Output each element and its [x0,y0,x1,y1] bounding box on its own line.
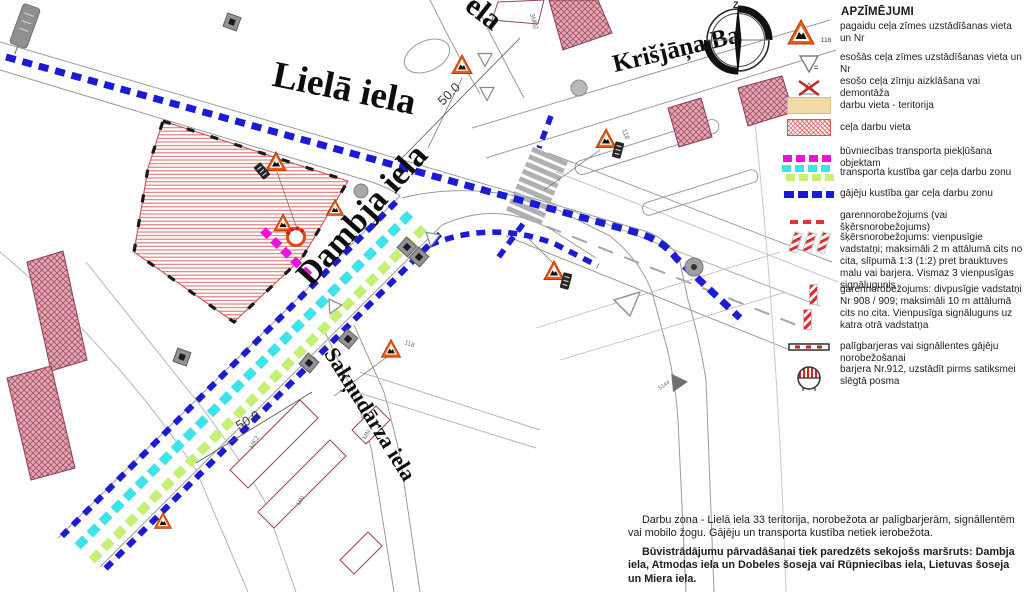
sign-number-118-b: 118 [403,339,415,349]
legend-item-temp-sign: 118 pagaidu ceļa zīmes uzstādīšanas viet… [778,18,1024,48]
legend-item-road-works: ceļa darbu vieta [778,119,1024,136]
legend-item-barrier-912: barjera Nr.912, uzstādīt pirms satiksmei… [778,364,1024,392]
legend-title: APZĪMĒJUMI [841,6,914,18]
legend-item-aux-barriers: palīgbarjeras vai signāllentes gājēju no… [778,341,1024,365]
construction-access-swatch [783,155,835,162]
legend-item-traffic-route: transporta kustība gar ceļa darbu zonu [778,165,1024,181]
note-route: Būvistrādājumu pārvadāšanai tiek paredzē… [628,546,1022,586]
sign-removal-icon [796,78,822,98]
note-work-zone: Darbu zona - Lielā iela 33 teritorija, n… [628,514,1022,541]
barrier-912-marker [288,228,305,245]
legend-label: transporta kustība gar ceļa darbu zonu [840,167,1024,179]
legend-label: garennorobežojums (vai šķērsnorobežojums… [840,210,1024,234]
legend-label: pagaidu ceļa zīmes uzstādīšanas vieta un… [840,21,1024,45]
legend-item-existing-sign: esošās ceļa zīmes uzstādīšanas vieta un … [778,52,1024,76]
legend-label: garennorobežojums: divpusīgie vadstatņi … [840,284,1024,332]
existing-sign-icon [797,53,821,75]
aux-barrier-icon [788,341,830,353]
road-works-swatch [787,119,831,136]
legend-item-longitudinal-posts: garennorobežojums: divpusīgie vadstatņi … [778,284,1024,332]
buildings-hatched [7,0,793,480]
legend-label: ceļa darbu vieta [840,122,1024,134]
cross-barrier-posts-icon [778,232,840,253]
legend-panel: APZĪMĒJUMI 118 pagaidu ceļa zīmes uzstād… [760,0,1024,430]
legend-label: palīgbarjeras vai signāllentes gājēju no… [840,341,1024,365]
legend-item-pedestrian-route: gājēju kustība gar ceļa darbu zonu [778,188,1024,200]
legend-label: barjera Nr.912, uzstādīt pirms satiksmei… [840,364,1024,388]
label-top-street-fragment: ela [459,0,508,37]
zebra-crossing [506,147,568,225]
compass-north-label: Z [733,0,739,10]
legend-label: esošās ceļa zīmes uzstādīšanas vieta un … [840,52,1024,76]
legend-item-cross-barrier: šķērsnorobežojums: vienpusīgie vadstatņi… [778,232,1024,292]
traffic-route-swatch-cyan [782,165,832,172]
temp-sign-icon [787,18,819,48]
sign-label-5144: 5144 [658,380,671,392]
legend-label: gājēju kustība gar ceļa darbu zonu [840,188,1024,200]
traffic-route-swatch-green [786,174,836,181]
legend-label: šķērsnorobežojums: vienpusīgie vadstatņi… [840,232,1024,292]
barrier-line-swatch [790,220,828,224]
label-liela-iela: Lielā iela [269,54,419,123]
sign-number-118-a: 118 [620,128,630,140]
pedestrian-route-swatch [784,191,834,198]
legend-item-barrier-line: garennorobežojums (vai šķērsnorobežojums… [778,210,1024,234]
temp-sign-number: 118 [821,37,831,44]
notes-block: Darbu zona - Lielā iela 33 teritorija, n… [628,514,1022,586]
street-labels: Lielā iela Dambja iela Sakņudārza iela K… [269,0,743,486]
longitudinal-posts-icon [778,284,840,330]
work-territory-swatch [787,97,831,114]
barrier-912-icon [795,364,823,392]
legend-label: darbu vieta - teritorija [840,100,1024,112]
legend-item-work-territory: darbu vieta - teritorija [778,97,1024,114]
